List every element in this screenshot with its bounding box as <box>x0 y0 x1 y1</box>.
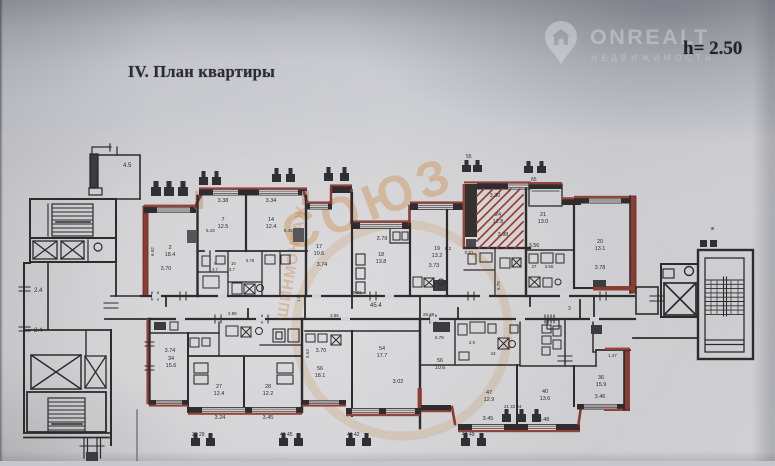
svg-text:13.6: 13.6 <box>540 396 551 402</box>
svg-text:14: 14 <box>268 217 274 223</box>
svg-text:54: 54 <box>379 346 385 352</box>
svg-text:36: 36 <box>598 375 604 381</box>
svg-text:6.78: 6.78 <box>435 335 444 340</box>
svg-text:13.0: 13.0 <box>538 219 549 225</box>
svg-text:13.1: 13.1 <box>595 246 606 252</box>
svg-text:41 42: 41 42 <box>347 432 360 438</box>
svg-text:5.79: 5.79 <box>496 281 501 290</box>
svg-text:13.2: 13.2 <box>432 253 443 259</box>
svg-text:17: 17 <box>316 244 322 250</box>
svg-text:3.24: 3.24 <box>215 415 226 421</box>
svg-text:2.0: 2.0 <box>469 340 476 345</box>
svg-text:2.4: 2.4 <box>34 328 43 334</box>
svg-text:21 22 24: 21 22 24 <box>504 404 522 409</box>
svg-text:3.79: 3.79 <box>377 236 388 242</box>
svg-text:10: 10 <box>231 261 236 266</box>
svg-text:3.46: 3.46 <box>595 394 606 400</box>
svg-text:3.70: 3.70 <box>161 266 172 272</box>
svg-text:34: 34 <box>168 356 174 362</box>
svg-text:26.39: 26.39 <box>423 312 435 317</box>
svg-text:2.85: 2.85 <box>228 311 237 316</box>
svg-text:3.7: 3.7 <box>212 267 218 272</box>
svg-text:20: 20 <box>597 239 603 245</box>
svg-text:5.43: 5.43 <box>206 228 215 233</box>
svg-text:5.78: 5.78 <box>246 258 255 263</box>
svg-text:15.9: 15.9 <box>596 382 607 388</box>
svg-text:10.6: 10.6 <box>435 365 446 371</box>
svg-text:48 49: 48 49 <box>462 432 475 438</box>
svg-text:6.92: 6.92 <box>150 247 155 256</box>
svg-text:28 29: 28 29 <box>192 432 205 438</box>
svg-text:18.4: 18.4 <box>165 252 176 258</box>
svg-text:24: 24 <box>495 212 501 218</box>
svg-text:7: 7 <box>221 217 224 223</box>
svg-text:3.78: 3.78 <box>595 265 606 271</box>
svg-text:3.74: 3.74 <box>165 348 176 354</box>
svg-text:18: 18 <box>378 252 384 258</box>
svg-text:4.5: 4.5 <box>123 163 132 169</box>
svg-text:3: 3 <box>568 306 571 312</box>
svg-text:2.4: 2.4 <box>34 288 43 294</box>
svg-text:13.8: 13.8 <box>376 259 387 265</box>
svg-text:3.02: 3.02 <box>393 379 404 385</box>
svg-text:5.53: 5.53 <box>305 349 310 358</box>
svg-text:1.47: 1.47 <box>608 353 617 358</box>
svg-text:12.4: 12.4 <box>214 391 225 397</box>
svg-text:6.2: 6.2 <box>445 246 452 251</box>
svg-text:3.34: 3.34 <box>266 198 277 204</box>
svg-text:5.96: 5.96 <box>353 290 362 295</box>
svg-text:41 45: 41 45 <box>280 432 293 438</box>
svg-text:17.7: 17.7 <box>377 353 388 359</box>
svg-text:3.98: 3.98 <box>498 232 509 238</box>
svg-text:12.2: 12.2 <box>263 391 274 397</box>
svg-text:8.45: 8.45 <box>284 228 293 233</box>
svg-text:10.6: 10.6 <box>314 251 325 257</box>
svg-text:40: 40 <box>542 389 548 395</box>
svg-text:3.70: 3.70 <box>316 348 327 354</box>
svg-text:1.37: 1.37 <box>296 293 301 302</box>
svg-text:45.4: 45.4 <box>370 303 382 309</box>
svg-text:27: 27 <box>216 384 222 390</box>
svg-text:18.1: 18.1 <box>315 373 326 379</box>
svg-text:3.56: 3.56 <box>545 264 554 269</box>
svg-text:43: 43 <box>490 351 496 356</box>
svg-text:3.45: 3.45 <box>483 416 494 422</box>
svg-text:15.6: 15.6 <box>166 363 177 369</box>
svg-text:3.30: 3.30 <box>490 193 501 199</box>
svg-text:12.8: 12.8 <box>493 219 504 225</box>
svg-text:21: 21 <box>540 212 546 218</box>
svg-text:47: 47 <box>486 390 492 396</box>
svg-text:3.74: 3.74 <box>317 262 328 268</box>
svg-text:12.9: 12.9 <box>484 397 495 403</box>
svg-text:2: 2 <box>168 245 171 251</box>
svg-text:3.73: 3.73 <box>429 263 440 269</box>
svg-text:19: 19 <box>434 246 440 252</box>
svg-text:3.86: 3.86 <box>330 313 339 318</box>
svg-text:3.38: 3.38 <box>218 198 229 204</box>
svg-text:12.4: 12.4 <box>266 224 277 230</box>
svg-text:28: 28 <box>265 384 271 390</box>
svg-text:12.5: 12.5 <box>218 224 229 230</box>
svg-text:55: 55 <box>466 154 472 160</box>
svg-text:65: 65 <box>531 177 537 183</box>
svg-text:56: 56 <box>317 366 323 372</box>
svg-text:3.45: 3.45 <box>263 415 274 421</box>
svg-text:3.56: 3.56 <box>529 243 540 249</box>
svg-text:56: 56 <box>437 358 443 364</box>
svg-text:3.7: 3.7 <box>229 267 235 272</box>
svg-text:27: 27 <box>531 264 537 269</box>
